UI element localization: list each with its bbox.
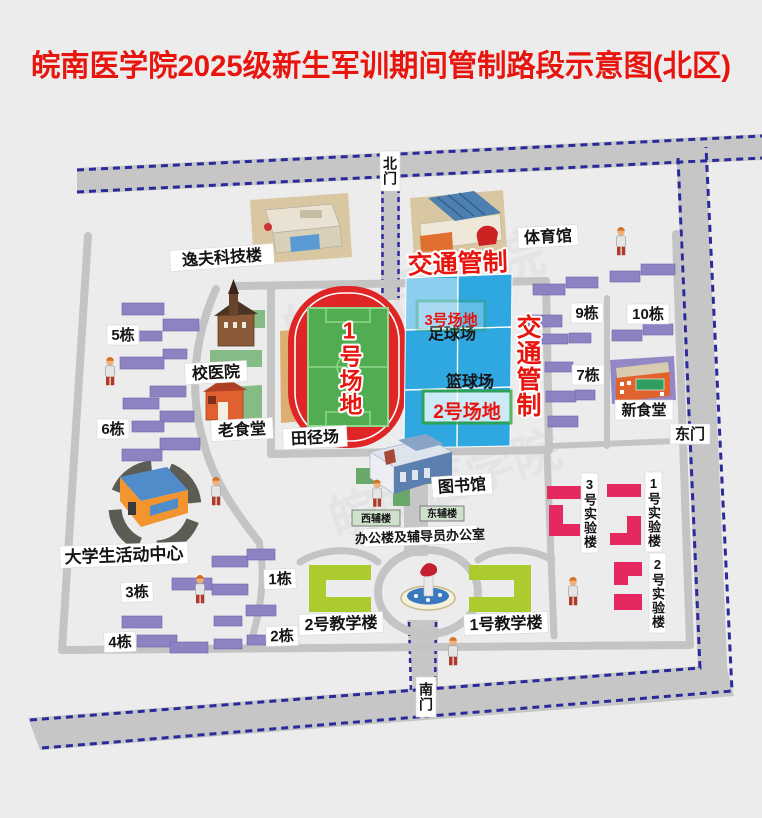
svg-text:校医院: 校医院 xyxy=(192,362,241,383)
dorm-9-label: 9栋 xyxy=(571,303,603,323)
east-gate-label: 东门 xyxy=(670,424,710,444)
svg-text:2号教学楼: 2号教学楼 xyxy=(304,613,378,635)
south-gate-label: 南门 xyxy=(416,677,436,717)
lab3-label: 3号实验楼 xyxy=(581,473,598,553)
dorm-4-label: 4栋 xyxy=(104,631,137,652)
svg-text:东辅楼: 东辅楼 xyxy=(427,507,457,520)
dorm-5-label: 5栋 xyxy=(107,325,139,345)
svg-text:西辅楼: 西辅楼 xyxy=(361,512,391,525)
svg-text:2栋: 2栋 xyxy=(270,627,294,646)
north-gate-label: 北门 xyxy=(380,151,400,191)
svg-text:2号实验楼: 2号实验楼 xyxy=(650,557,665,629)
campus-map: 皖南医学院 皖南医学院 xyxy=(0,0,762,818)
teach1-label: 1号教学楼 xyxy=(464,612,549,636)
dorm-1-label: 1栋 xyxy=(264,568,297,589)
svg-text:体育馆: 体育馆 xyxy=(524,226,573,247)
svg-text:7栋: 7栋 xyxy=(576,366,599,384)
svg-text:3栋: 3栋 xyxy=(125,583,149,602)
ground-3-label: 3号场地 xyxy=(424,311,477,329)
dorm-2-label: 2栋 xyxy=(266,625,299,646)
svg-text:北门: 北门 xyxy=(382,156,398,186)
dorm-10-label: 10栋 xyxy=(627,304,669,324)
new-canteen-label: 新食堂 xyxy=(615,400,673,420)
dorm-7-label: 7栋 xyxy=(572,365,604,385)
page-title: 皖南医学院2025级新生军训期间管制路段示意图(北区) xyxy=(31,49,731,83)
svg-text:新食堂: 新食堂 xyxy=(621,401,666,419)
svg-text:1栋: 1栋 xyxy=(268,570,292,589)
svg-text:5栋: 5栋 xyxy=(111,326,134,344)
traffic-control-text-north: 交通管制 xyxy=(407,247,508,279)
basketball-court-label: 篮球场 xyxy=(445,372,494,391)
library-label: 图书馆 xyxy=(431,473,492,498)
dorm-6-label: 6栋 xyxy=(97,419,129,439)
svg-text:3号实验楼: 3号实验楼 xyxy=(582,477,597,549)
svg-text:4栋: 4栋 xyxy=(108,633,132,652)
traffic-control-text-east: 交通管制 xyxy=(513,313,542,418)
hospital-label: 校医院 xyxy=(184,360,247,384)
lab1-label: 1号实验楼 xyxy=(645,472,662,552)
svg-text:1号教学楼: 1号教学楼 xyxy=(469,613,543,635)
svg-text:6栋: 6栋 xyxy=(101,420,124,438)
map-canvas: 皖南医学院 皖南医学院 xyxy=(0,0,762,818)
gym-label: 体育馆 xyxy=(517,224,578,248)
dorm-3-label: 3栋 xyxy=(121,581,154,602)
sports-courts: 足球场 篮球场 3号场地 2号场地 xyxy=(404,274,512,448)
svg-text:田径场: 田径场 xyxy=(291,427,340,448)
old-canteen-label: 老食堂 xyxy=(210,417,273,441)
svg-text:南门: 南门 xyxy=(418,681,434,712)
svg-text:老食堂: 老食堂 xyxy=(217,419,267,441)
teach2-label: 2号教学楼 xyxy=(299,612,384,636)
svg-text:大学生活动中心: 大学生活动中心 xyxy=(64,543,184,567)
svg-text:东门: 东门 xyxy=(675,425,705,443)
lab2-label: 2号实验楼 xyxy=(649,553,666,633)
east-annex-label: 东辅楼 xyxy=(427,507,457,520)
lab-1-block-a xyxy=(607,484,641,497)
svg-text:9栋: 9栋 xyxy=(575,304,598,322)
west-annex-label: 西辅楼 xyxy=(361,512,391,525)
new-canteen-building xyxy=(610,356,676,404)
track-field-label: 田径场 xyxy=(282,425,347,449)
activity-center-label: 大学生活动中心 xyxy=(60,542,189,568)
ground-2-label: 2号场地 xyxy=(433,400,501,423)
lab-3-block-a xyxy=(547,486,581,499)
yifu-building xyxy=(264,204,342,253)
athletics-stadium: 1号场地 xyxy=(288,286,406,448)
svg-text:10栋: 10栋 xyxy=(632,305,664,323)
lab-2-block-b xyxy=(614,594,642,610)
ground-1-label: 1号场地 xyxy=(336,318,363,417)
svg-text:1号实验楼: 1号实验楼 xyxy=(646,476,661,548)
